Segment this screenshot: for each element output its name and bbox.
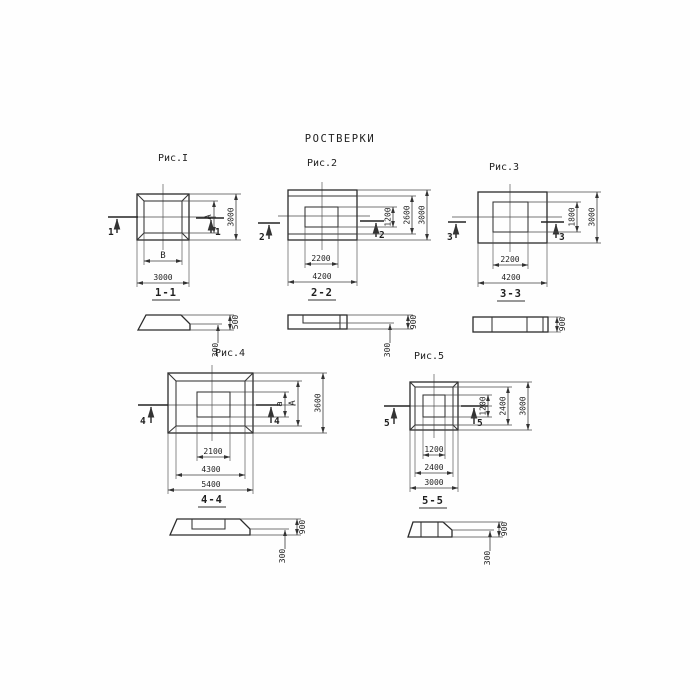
fig5-dim-inner-height: 1200 — [479, 396, 488, 415]
fig5-section-view: 300 900 — [408, 522, 509, 566]
fig2-cut-label-left: 2 — [259, 232, 265, 243]
fig4-dim-mid-height: А — [288, 400, 298, 406]
fig4-cut-mark-right: 4 — [256, 405, 280, 427]
fig4-section-title: 4-4 — [201, 494, 223, 506]
fig3-plan-outline — [478, 192, 547, 243]
fig2-dim-bottom: 2200 4200 — [288, 227, 357, 286]
fig5-cut-label-left: 5 — [384, 418, 390, 429]
fig5-cut-mark-left: 5 — [384, 406, 410, 429]
fig4-section-dim-step: 300 — [278, 549, 287, 564]
fig1-cut-mark-left: 1 — [108, 217, 138, 238]
fig2-caption: Рис.2 — [307, 158, 337, 169]
fig3-cut-label-left: 3 — [447, 232, 453, 243]
fig1-cut-label-right: 1 — [215, 227, 221, 238]
fig4-dim-bottom: 2100 4300 5400 — [168, 417, 253, 494]
fig1-dim-outer-height: 3000 — [227, 207, 236, 226]
fig2-section-dim-height: 900 — [409, 315, 418, 330]
fig5-section-dim-height: 900 — [500, 522, 509, 537]
fig2-dim-inner-height: 1200 — [384, 207, 393, 226]
fig4-cut-label-right: 4 — [274, 416, 280, 427]
fig4-dim-mid-width: 4300 — [201, 465, 220, 474]
fig3-dim-inner-height: 1800 — [568, 207, 577, 226]
fig5-dim-mid-height: 2400 — [499, 396, 508, 415]
fig1-dim-inner-height: А — [204, 214, 214, 220]
fig3-dim-outer-width: 4200 — [501, 273, 520, 282]
figure-3: Рис.3 3 3 2200 4200 — [447, 162, 601, 332]
fig1-dim-inner-width: В — [160, 251, 165, 261]
drawing-title: РОСТВЕРКИ — [305, 133, 375, 145]
fig5-dim-mid-width: 2400 — [424, 463, 443, 472]
fig1-caption: Рис.I — [158, 153, 188, 164]
fig4-cut-mark-left: 4 — [138, 405, 168, 427]
fig2-section-title: 2-2 — [311, 287, 333, 299]
figure-1: Рис.I 1 1 В — [108, 153, 241, 357]
fig3-cut-mark-right: 3 — [541, 222, 565, 243]
fig4-dim-outer-height: 3600 — [314, 393, 323, 412]
fig2-section-dim-step: 300 — [383, 343, 392, 358]
fig3-section-title: 3-3 — [500, 288, 522, 300]
fig1-cut-label-left: 1 — [108, 227, 114, 238]
fig3-section-dim-height: 900 — [558, 317, 567, 332]
fig3-cut-label-right: 3 — [559, 232, 565, 243]
figure-5: Рис.5 5 5 1200 — [384, 351, 532, 565]
figure-2: Рис.2 2 2 2200 4200 — [258, 158, 431, 357]
fig4-section-view: 300 900 — [170, 519, 307, 563]
fig1-dim-outer-width: 3000 — [153, 273, 172, 282]
fig3-caption: Рис.3 — [489, 162, 519, 173]
fig2-dim-outer-height: 3000 — [418, 205, 427, 224]
fig3-cut-mark-left: 3 — [447, 222, 466, 243]
fig2-cut-mark-right: 2 — [360, 221, 385, 241]
fig4-plan-outline — [168, 373, 253, 433]
fig2-dim-inner-width: 2200 — [311, 254, 330, 263]
technical-drawing-canvas: РОСТВЕРКИ Рис.I 1 1 — [0, 0, 700, 700]
fig1-section-dim-height: 500 — [231, 315, 240, 330]
fig2-cut-label-right: 2 — [379, 230, 385, 241]
fig4-section-dim-height: 900 — [298, 520, 307, 535]
figure-4: Рис.4 4 4 2100 — [138, 348, 327, 563]
fig5-dim-inner-width: 1200 — [424, 445, 443, 454]
fig3-section-view: 900 — [473, 317, 567, 332]
fig3-dim-inner-width: 2200 — [500, 255, 519, 264]
fig5-cut-label-right: 5 — [477, 418, 483, 429]
fig5-caption: Рис.5 — [414, 351, 444, 362]
fig4-dim-inner-height: а — [275, 401, 285, 406]
fig5-dim-outer-width: 3000 — [424, 478, 443, 487]
scanned-drawing-page: РОСТВЕРКИ Рис.I 1 1 — [0, 0, 700, 700]
fig2-plan-outline — [288, 190, 357, 240]
fig2-cut-mark-left: 2 — [258, 223, 280, 243]
fig1-cut-mark-right: 1 — [196, 218, 224, 238]
fig4-dim-inner-width: 2100 — [203, 447, 222, 456]
fig2-dim-outer-width: 4200 — [312, 272, 331, 281]
fig4-caption: Рис.4 — [215, 348, 245, 359]
fig4-cut-label-left: 4 — [140, 416, 146, 427]
fig5-section-title: 5-5 — [422, 495, 444, 507]
fig3-dim-outer-height: 3000 — [588, 207, 597, 226]
fig5-section-dim-step: 300 — [483, 551, 492, 566]
fig5-dim-outer-height: 3000 — [519, 396, 528, 415]
fig2-section-view: 300 900 — [288, 315, 418, 358]
fig4-dim-outer-width: 5400 — [201, 480, 220, 489]
fig1-section-title: 1-1 — [155, 287, 177, 299]
fig2-dim-mid-height: 2600 — [403, 205, 412, 224]
fig3-dim-bottom: 2200 4200 — [478, 232, 547, 287]
